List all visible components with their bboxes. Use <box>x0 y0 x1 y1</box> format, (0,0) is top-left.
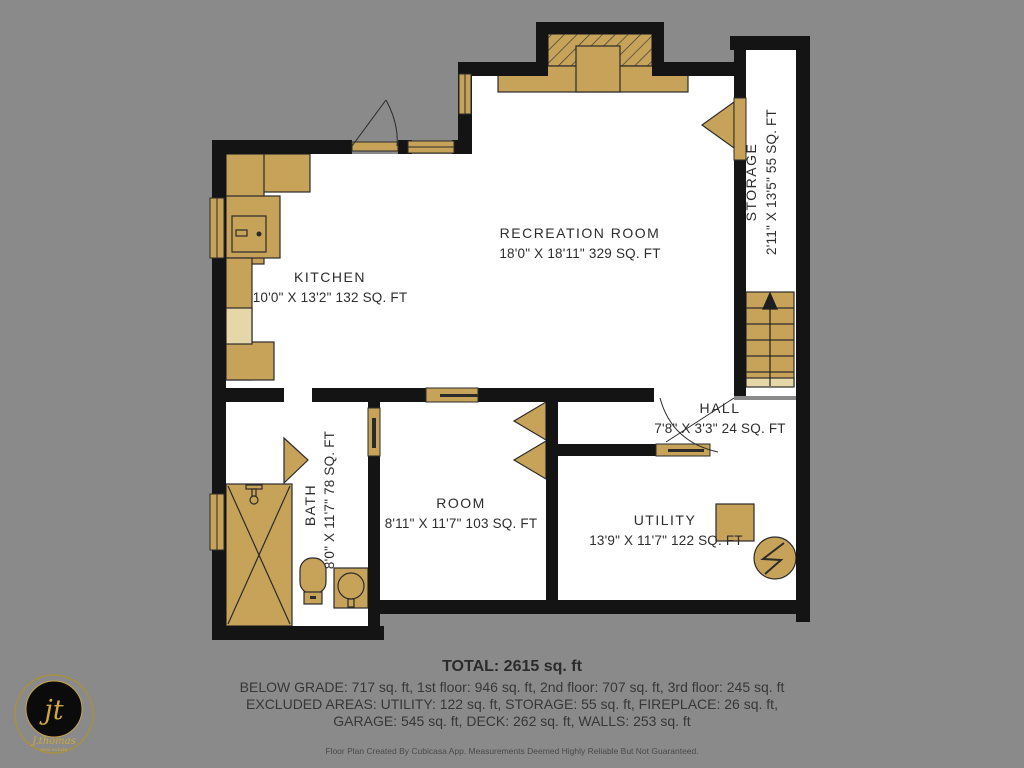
sliding-door <box>426 388 478 402</box>
bath-label: BATH <box>302 484 318 526</box>
shower-icon <box>226 484 292 626</box>
recreation-room-dims: 18'0" X 18'11" 329 SQ. FT <box>499 246 660 261</box>
dishwasher-icon <box>226 308 252 344</box>
room-dims: 8'11" X 11'7" 103 SQ. FT <box>385 516 538 531</box>
kitchen-label: KITCHEN <box>294 269 366 285</box>
utility-label: UTILITY <box>634 512 697 528</box>
window <box>210 198 224 258</box>
stove-icon <box>232 216 266 252</box>
area-summary: TOTAL: 2615 sq. ft BELOW GRADE: 717 sq. … <box>0 658 1024 730</box>
door-leaf <box>352 100 386 146</box>
bath-door-opening <box>284 388 312 402</box>
sliding-door <box>656 444 710 456</box>
logo-name: J.thomas <box>30 736 75 747</box>
window <box>408 141 454 153</box>
pocket-door <box>368 408 380 456</box>
summary-excluded-1: EXCLUDED AREAS: UTILITY: 122 sq. ft, STO… <box>0 696 1024 713</box>
door-swing-arc <box>386 100 397 146</box>
utility-dims: 13'9" X 11'7" 122 SQ. FT <box>589 533 743 548</box>
floor-plan: KITCHEN 10'0" X 13'2" 132 SQ. FT RECREAT… <box>0 0 1024 768</box>
hall-utility-opening <box>710 444 796 458</box>
kitchen-dims: 10'0" X 13'2" 132 SQ. FT <box>253 290 408 305</box>
summary-floors: BELOW GRADE: 717 sq. ft, 1st floor: 946 … <box>0 679 1024 696</box>
logo-tagline: real estate <box>40 747 67 753</box>
window <box>459 74 471 114</box>
room-label: ROOM <box>436 495 486 511</box>
storage-dims: 2'11" X 13'5" 55 SQ. FT <box>764 109 779 255</box>
door-threshold <box>352 142 398 151</box>
storage-label: STORAGE <box>743 143 759 222</box>
room-area-utility <box>558 456 796 600</box>
bath-dims: 8'0" X 11'7" 78 SQ. FT <box>322 431 337 569</box>
floor-plan-page: KITCHEN 10'0" X 13'2" 132 SQ. FT RECREAT… <box>0 0 1024 768</box>
water-heater-icon <box>754 537 796 579</box>
sink-icon <box>334 568 368 608</box>
hall-label: HALL <box>699 400 740 416</box>
firebox <box>576 46 620 92</box>
total-area: TOTAL: 2615 sq. ft <box>0 658 1024 676</box>
recreation-room-label: RECREATION ROOM <box>500 225 661 241</box>
brand-logo: jt J.thomas real estate <box>12 672 96 756</box>
disclaimer: Floor Plan Created By Cubicasa App. Meas… <box>0 746 1024 756</box>
summary-excluded-2: GARAGE: 545 sq. ft, DECK: 262 sq. ft, WA… <box>0 713 1024 730</box>
hall-dims: 7'8" X 3'3" 24 SQ. FT <box>654 421 786 436</box>
window <box>210 494 224 550</box>
